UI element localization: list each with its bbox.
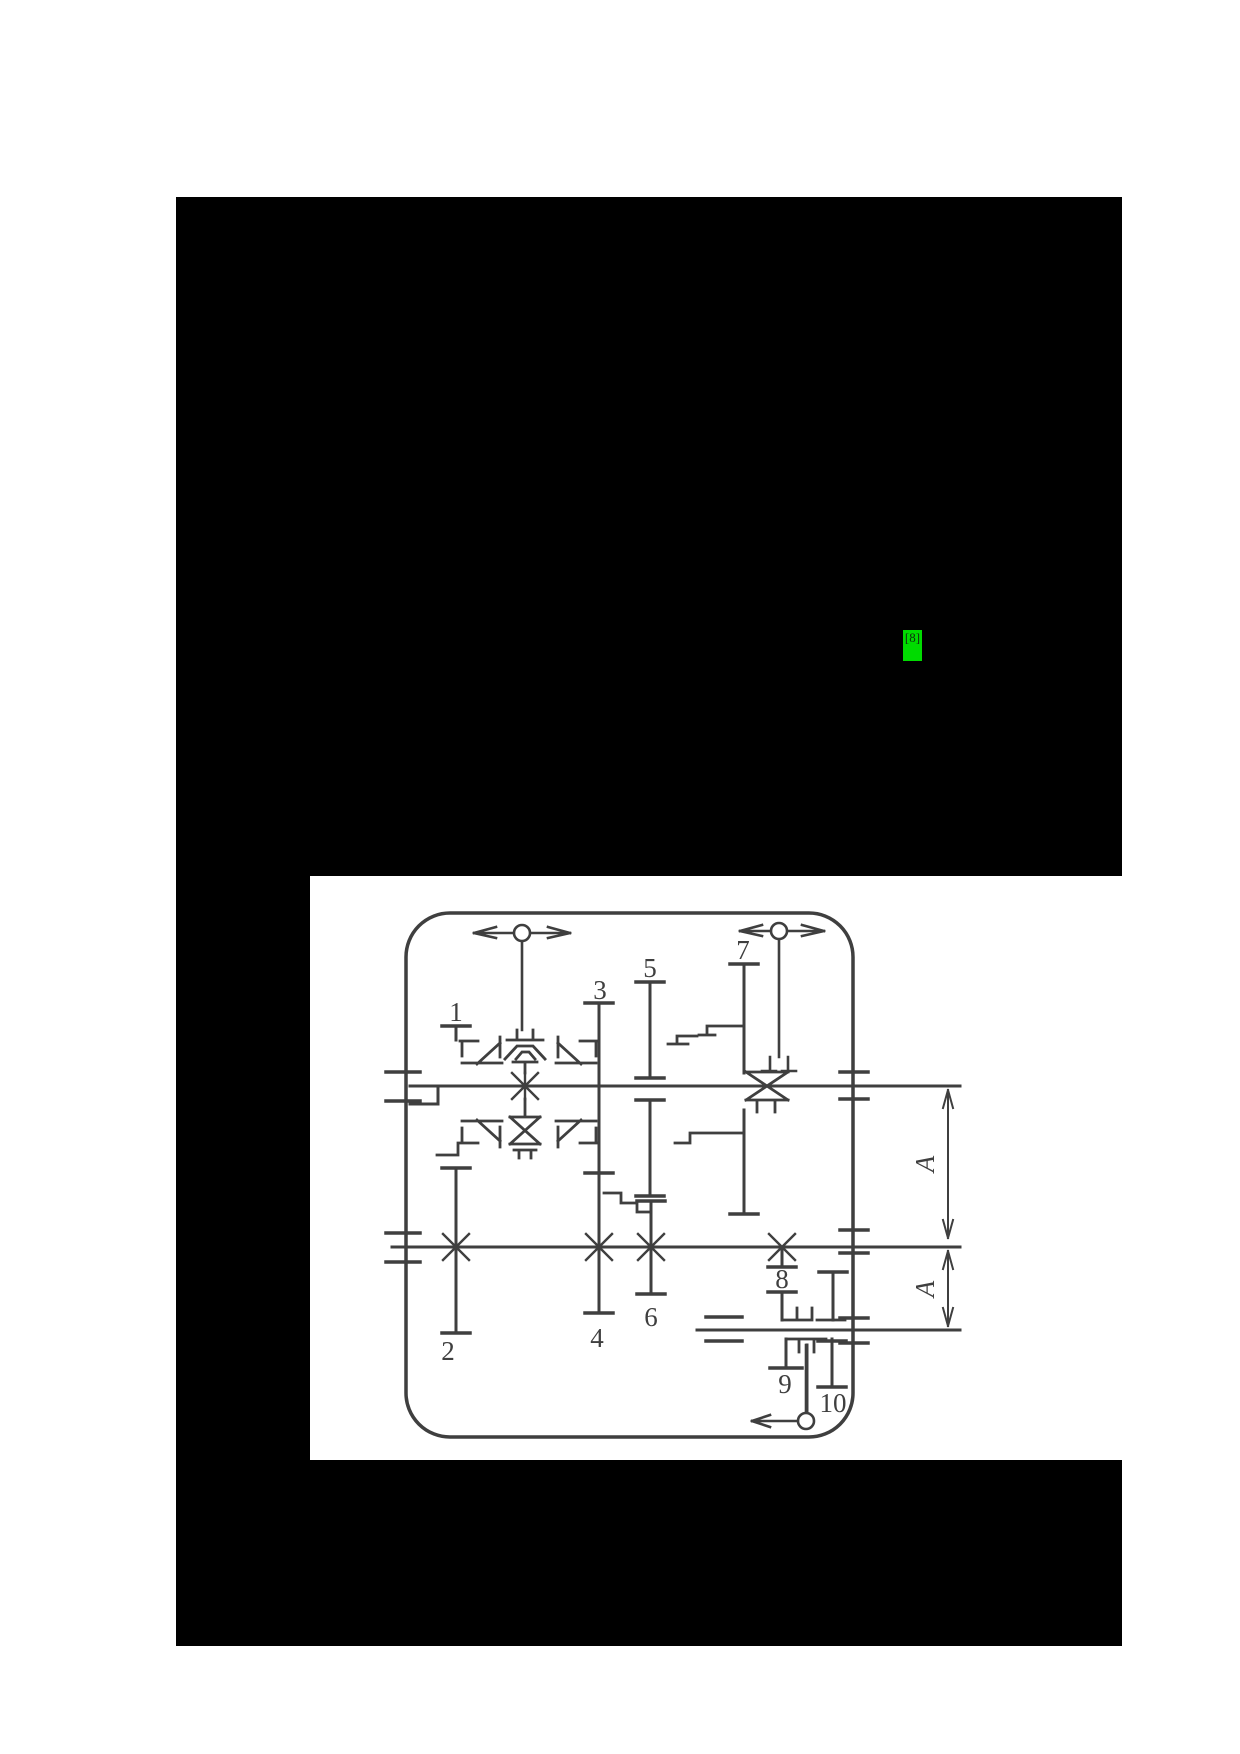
shaft-lines	[392, 1086, 960, 1330]
gear-label-7: 7	[736, 935, 750, 965]
gear-label-2: 2	[441, 1336, 455, 1366]
gear-lines	[456, 964, 833, 1413]
shaft-cross-marks	[443, 1073, 795, 1260]
dimension-lines	[943, 1090, 953, 1326]
shift-knob-left	[514, 925, 530, 941]
gear-transmission-diagram: 1 3 5 7 2 4 6 8 9 10 A A	[0, 0, 1240, 1754]
gear-label-3: 3	[593, 975, 607, 1005]
gear-label-1: 1	[449, 997, 463, 1027]
scanned-page: [8] 1 3 5 7 2 4 6 8 9 1	[0, 0, 1240, 1754]
clutch-synchro-details	[437, 1026, 845, 1352]
gear-label-4: 4	[590, 1323, 604, 1353]
gear-label-8: 8	[775, 1264, 789, 1294]
center-distance-label-upper: A	[910, 1155, 940, 1174]
gear-label-6: 6	[644, 1302, 658, 1332]
gear-label-9: 9	[778, 1369, 792, 1399]
gear-label-5: 5	[643, 953, 657, 983]
shift-knob-bottom	[798, 1413, 814, 1429]
center-distance-label-lower: A	[910, 1280, 940, 1299]
gear-label-10: 10	[820, 1388, 847, 1418]
bearing-ticks	[386, 1072, 868, 1343]
shift-knob-right	[771, 923, 787, 939]
